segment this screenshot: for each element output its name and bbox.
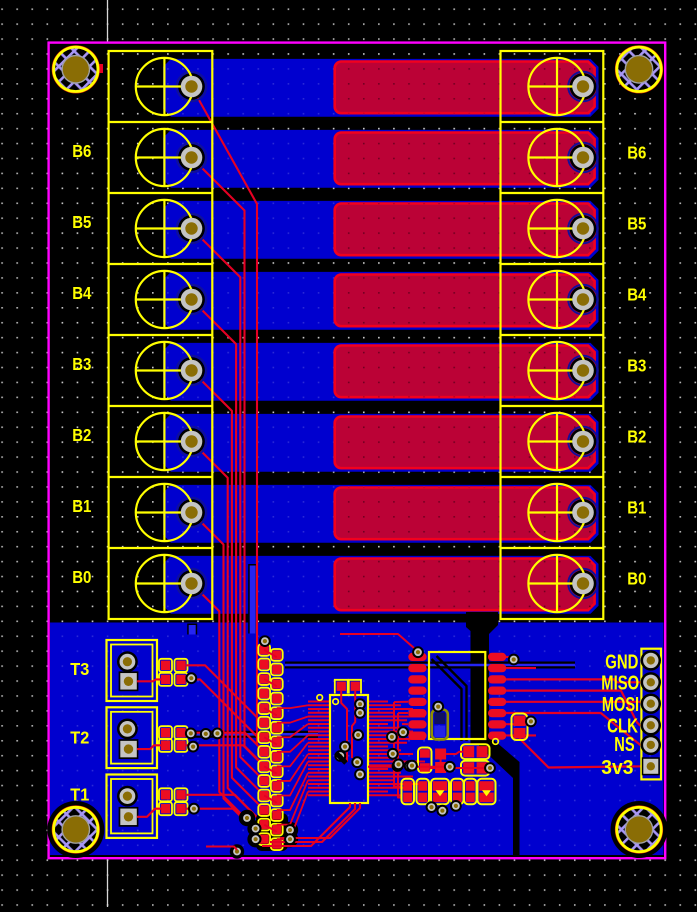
svg-text:T3: T3 [70,659,89,679]
svg-text:B6: B6 [72,141,91,161]
svg-text:NS: NS [614,734,634,756]
svg-text:B0: B0 [72,567,91,587]
svg-text:B1: B1 [72,496,91,516]
svg-text:B3: B3 [72,354,91,374]
svg-text:T1: T1 [70,785,89,805]
svg-text:B4: B4 [72,283,91,303]
svg-text:B6: B6 [627,142,646,162]
svg-text:3v3: 3v3 [601,757,633,779]
svg-text:T2: T2 [70,728,89,748]
svg-text:B0: B0 [627,568,646,588]
svg-text:MISO: MISO [601,673,639,695]
svg-text:B1: B1 [627,497,646,517]
svg-text:B2: B2 [627,426,646,446]
svg-text:B4: B4 [627,284,646,304]
svg-text:B5: B5 [72,212,91,232]
svg-text:B3: B3 [627,355,646,375]
svg-text:B5: B5 [627,213,646,233]
svg-text:GND: GND [605,651,638,673]
svg-text:MOSI: MOSI [602,694,639,716]
svg-text:B2: B2 [72,425,91,445]
